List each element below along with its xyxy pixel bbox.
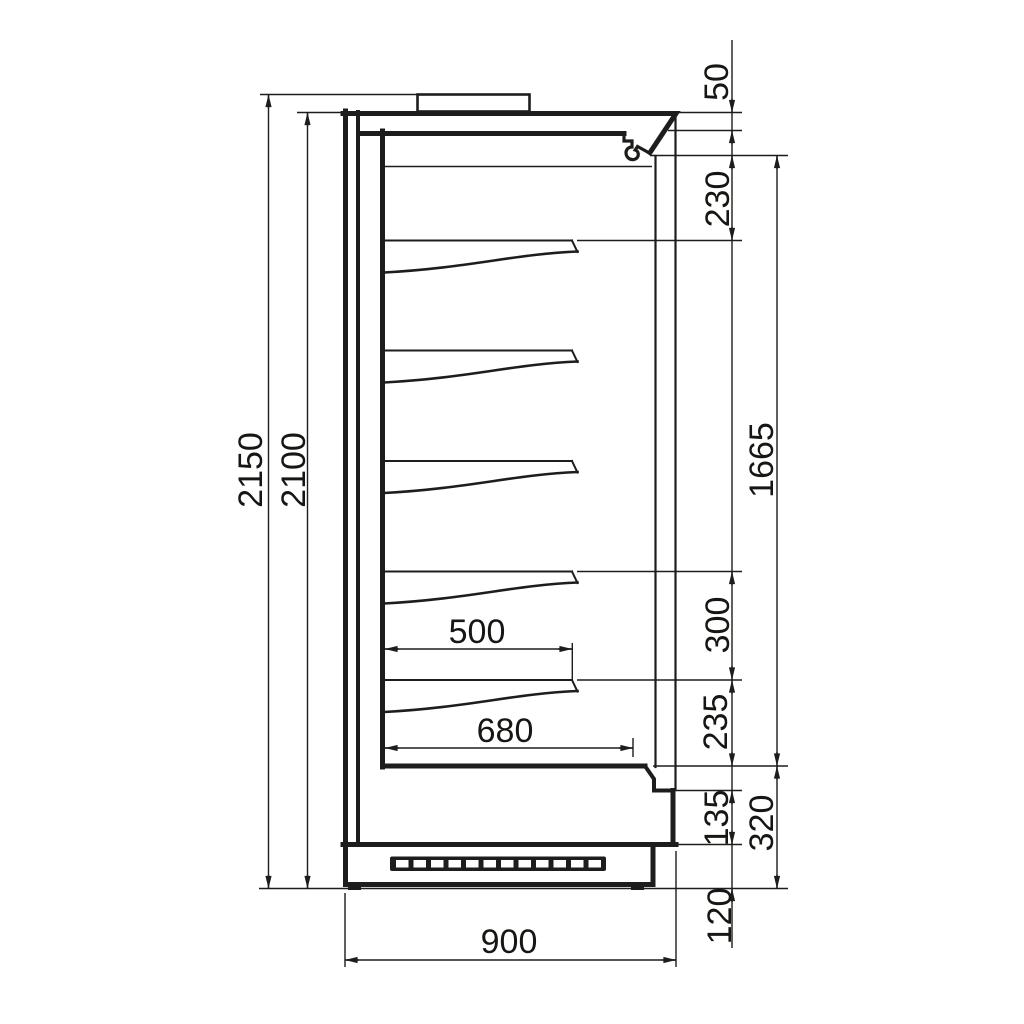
- dim-label-900: 900: [481, 923, 538, 961]
- shelf-2: [384, 351, 578, 383]
- dim-label-320: 320: [743, 795, 781, 852]
- shelf-underside-curve: [384, 583, 578, 604]
- dim-overall-height: 2150: [232, 95, 270, 889]
- dim-well-depth: 680: [385, 712, 633, 750]
- dim-label-300: 300: [699, 597, 737, 654]
- front-step: [645, 766, 673, 791]
- vent-slot: [519, 860, 532, 868]
- dim-label-500: 500: [449, 613, 506, 651]
- dim-shelf-depth: 500: [385, 613, 572, 651]
- vent-slot: [449, 860, 462, 868]
- vent-slot: [536, 860, 549, 868]
- dim-chain-right-inner: 50 230 300 235 135 120: [697, 40, 739, 948]
- air-discharge-hook: [624, 134, 649, 160]
- vent-slot: [431, 860, 444, 868]
- dim-chain-right-outer: 1665 320: [743, 156, 781, 889]
- dim-label-135: 135: [698, 790, 736, 847]
- dim-overall-depth: 900: [345, 923, 676, 961]
- shelf-underside-curve: [384, 362, 578, 383]
- dim-label-120: 120: [701, 888, 739, 945]
- vent-slot: [396, 860, 409, 868]
- dim-label-680: 680: [477, 712, 534, 750]
- vent-slot: [571, 860, 584, 868]
- vent-slot: [484, 860, 497, 868]
- shelf-5: [384, 680, 578, 712]
- dim-label-230: 230: [699, 171, 737, 228]
- dim-label-235: 235: [697, 694, 735, 751]
- shelf-underside-curve: [384, 691, 578, 712]
- drawing-canvas: 2150 2100 50 230 300 235 135: [0, 0, 1024, 1024]
- vent-slot: [414, 860, 427, 868]
- vent-slot: [554, 860, 567, 868]
- dim-label-2150: 2150: [232, 432, 270, 508]
- shelf-underside-curve: [384, 472, 578, 493]
- top-cap: [418, 95, 530, 112]
- vent-slot: [589, 860, 602, 868]
- vent-grille: [390, 857, 606, 872]
- dim-label-1665: 1665: [743, 422, 781, 498]
- dim-label-50: 50: [698, 63, 736, 101]
- dim-label-2100: 2100: [275, 432, 313, 508]
- vent-slot: [501, 860, 514, 868]
- shelf-underside-curve: [384, 252, 578, 273]
- dimensions: 2150 2100 50 230 300 235 135: [232, 40, 781, 961]
- vent-slot: [466, 860, 479, 868]
- shelf-4: [384, 572, 578, 604]
- shelf-3: [384, 461, 578, 493]
- shelf-1: [384, 241, 578, 273]
- dim-body-height: 2100: [275, 113, 313, 889]
- technical-drawing: 2150 2100 50 230 300 235 135: [0, 0, 1024, 1024]
